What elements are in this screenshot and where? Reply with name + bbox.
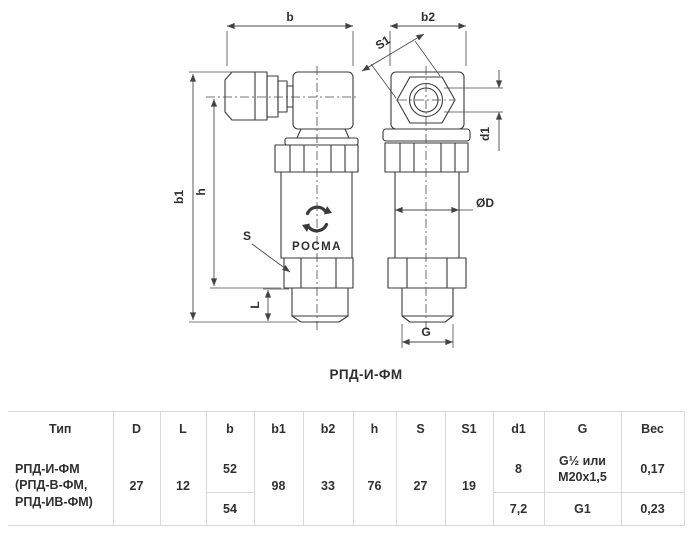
header-d: D bbox=[113, 412, 160, 447]
header-b2: b2 bbox=[303, 412, 353, 447]
cell-d1-top: 8 bbox=[493, 446, 544, 493]
cell-s1: 19 bbox=[445, 446, 493, 526]
dim-label-b2: b2 bbox=[421, 10, 435, 24]
dimension-g: G bbox=[402, 324, 453, 348]
dimension-b2: b2 bbox=[390, 10, 466, 66]
front-view: b2 S1 d1 ØD bbox=[362, 10, 503, 348]
header-b: b bbox=[206, 412, 254, 447]
header-l: L bbox=[160, 412, 206, 447]
cell-b-top: 52 bbox=[206, 446, 254, 493]
cell-d1-bottom: 7,2 bbox=[493, 493, 544, 526]
dim-label-l: L bbox=[248, 301, 262, 308]
dim-label-s: S bbox=[243, 229, 251, 243]
cell-b-bottom: 54 bbox=[206, 493, 254, 526]
thread-stub-front bbox=[402, 288, 453, 322]
dimension-s: S bbox=[243, 229, 290, 272]
header-s: S bbox=[396, 412, 445, 447]
cell-b1: 98 bbox=[254, 446, 303, 526]
dim-label-b: b bbox=[286, 10, 293, 24]
hex-section-front bbox=[388, 258, 466, 288]
adapter-flange-front bbox=[383, 129, 470, 141]
cell-h: 76 bbox=[353, 446, 396, 526]
table-row-variant-1: РПД-И-ФМ (РПД-В-ФМ, РПД-ИВ-ФМ) 27 12 52 … bbox=[8, 446, 684, 493]
cell-s: 27 bbox=[396, 446, 445, 526]
cell-type: РПД-И-ФМ (РПД-В-ФМ, РПД-ИВ-ФМ) bbox=[8, 446, 113, 526]
header-d1: d1 bbox=[493, 412, 544, 447]
dim-label-h: h bbox=[194, 188, 208, 195]
dim-label-g: G bbox=[421, 325, 430, 339]
cell-g-top: G½ или М20х1,5 bbox=[544, 446, 621, 493]
header-s1: S1 bbox=[445, 412, 493, 447]
header-weight: Вес bbox=[621, 412, 684, 447]
dimension-d1: d1 bbox=[444, 70, 503, 151]
cell-d: 27 bbox=[113, 446, 160, 526]
cable-gland-side bbox=[225, 72, 293, 120]
cell-b2: 33 bbox=[303, 446, 353, 526]
hex-section-side bbox=[284, 258, 353, 288]
dimension-drawing: РОСМА b bbox=[0, 0, 700, 405]
header-g: G bbox=[544, 412, 621, 447]
dimension-l: L bbox=[248, 289, 289, 321]
header-b1: b1 bbox=[254, 412, 303, 447]
cell-weight-bottom: 0,23 bbox=[621, 493, 684, 526]
dim-label-b1: b1 bbox=[172, 190, 186, 204]
header-type: Тип bbox=[8, 412, 113, 447]
header-h: h bbox=[353, 412, 396, 447]
dim-label-od: ØD bbox=[476, 196, 494, 210]
adapter-flange-side bbox=[285, 129, 358, 145]
thread-stub-side bbox=[292, 288, 348, 322]
knurled-ring-front bbox=[385, 143, 468, 172]
side-view: РОСМА b bbox=[172, 10, 359, 330]
cell-l: 12 bbox=[160, 446, 206, 526]
dimension-h: h bbox=[194, 99, 281, 288]
cell-weight-top: 0,17 bbox=[621, 446, 684, 493]
knurled-ring-side bbox=[275, 145, 358, 172]
body-cylinder-front bbox=[395, 172, 459, 258]
connector-housing-front bbox=[391, 72, 464, 129]
cell-g-bottom: G1 bbox=[544, 493, 621, 526]
dimensions-table: Тип D L b b1 b2 h S S1 d1 G Вес РПД-И-ФМ… bbox=[8, 411, 685, 526]
technical-drawing-page: РОСМА b bbox=[0, 0, 700, 543]
drawing-caption: РПД-И-ФМ bbox=[330, 367, 403, 382]
dimension-b: b bbox=[227, 10, 353, 66]
connector-housing-side bbox=[293, 72, 353, 129]
table-header-row: Тип D L b b1 b2 h S S1 d1 G Вес bbox=[8, 412, 684, 447]
dim-label-d1: d1 bbox=[478, 127, 492, 141]
dimension-od: ØD bbox=[395, 196, 494, 210]
